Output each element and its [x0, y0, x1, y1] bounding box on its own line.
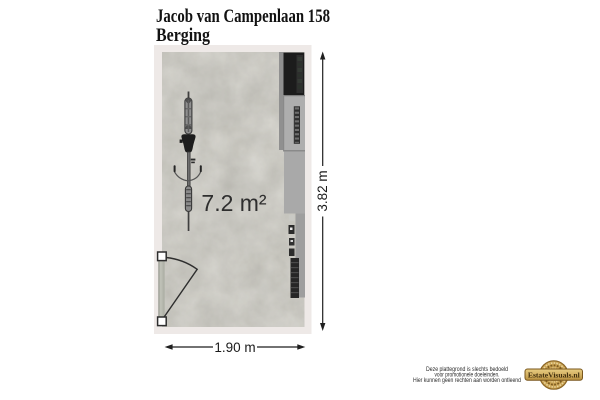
svg-text:3.82 m: 3.82 m	[315, 170, 330, 211]
svg-text:Berging: Berging	[156, 25, 210, 46]
svg-text:EstateVisuals.nl: EstateVisuals.nl	[528, 371, 580, 380]
svg-text:7.2 m²: 7.2 m²	[201, 190, 267, 216]
svg-text:1.90 m: 1.90 m	[214, 340, 255, 355]
svg-text:Hier kunnen geen rechten aan w: Hier kunnen geen rechten aan worden ontl…	[413, 377, 521, 384]
svg-text:Jacob van Campenlaan 158: Jacob van Campenlaan 158	[156, 6, 330, 27]
